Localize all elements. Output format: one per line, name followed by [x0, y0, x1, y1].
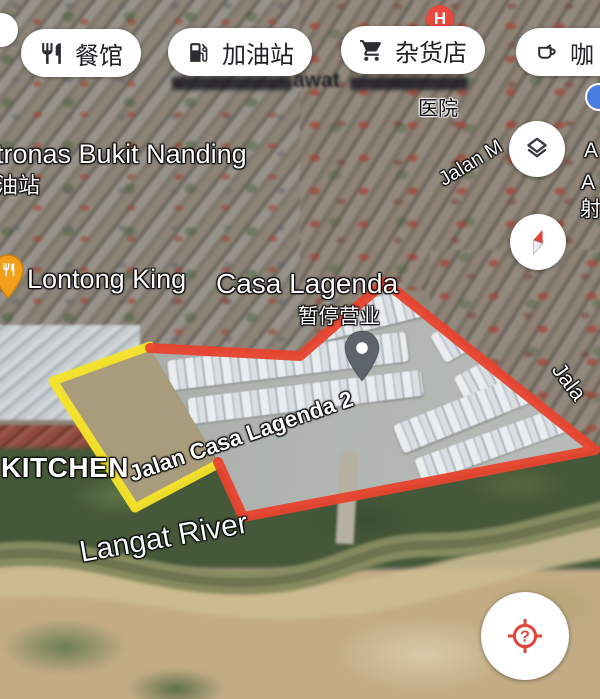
locate-question-glyph: ?	[520, 629, 530, 646]
poi-label-lontong-king[interactable]: Lontong King	[27, 264, 186, 295]
chip-coffee[interactable]: 咖	[516, 28, 600, 76]
gas-station-icon	[186, 40, 211, 65]
chip-restaurants[interactable]: 餐馆	[21, 29, 141, 77]
chip-coffee-label: 咖	[570, 35, 594, 70]
obscured-text-bar	[350, 77, 468, 90]
locate-button[interactable]: ?	[481, 592, 569, 680]
chip-grocery[interactable]: 杂货店	[341, 26, 485, 74]
status-label-closed: 暂停营业	[298, 299, 380, 329]
chip-gas-station-label: 加油站	[222, 35, 294, 70]
restaurant-icon	[39, 41, 64, 66]
edge-label-a1: A	[584, 139, 598, 163]
chip-gas-station[interactable]: 加油站	[168, 28, 312, 76]
chip-restaurants-label: 餐馆	[75, 36, 123, 71]
map-viewport[interactable]: tronas Bukit Nanding 油站 医院 awat Jalan M …	[0, 0, 600, 699]
obscured-text-bar	[172, 77, 292, 90]
poi-label-petronas[interactable]: tronas Bukit Nanding	[0, 139, 247, 170]
poi-label-kitchen[interactable]: KITCHEN	[1, 452, 129, 484]
poi-label-casa-lagenda[interactable]: Casa Lagenda	[216, 268, 398, 300]
poi-label-hospital[interactable]: 医院	[418, 92, 458, 121]
compass-needle-icon	[522, 226, 554, 258]
grocery-cart-icon	[359, 38, 384, 63]
compass-button[interactable]	[510, 214, 566, 270]
edge-label-she: 射	[580, 193, 600, 223]
layers-button[interactable]	[509, 121, 565, 177]
chip-grocery-label: 杂货店	[395, 33, 467, 68]
locate-target-icon: ?	[505, 616, 545, 656]
layers-icon	[522, 134, 552, 164]
coffee-cup-icon	[534, 40, 559, 65]
edge-label-a2: A	[581, 171, 595, 195]
poi-label-petronas-sub: 油站	[0, 168, 40, 200]
